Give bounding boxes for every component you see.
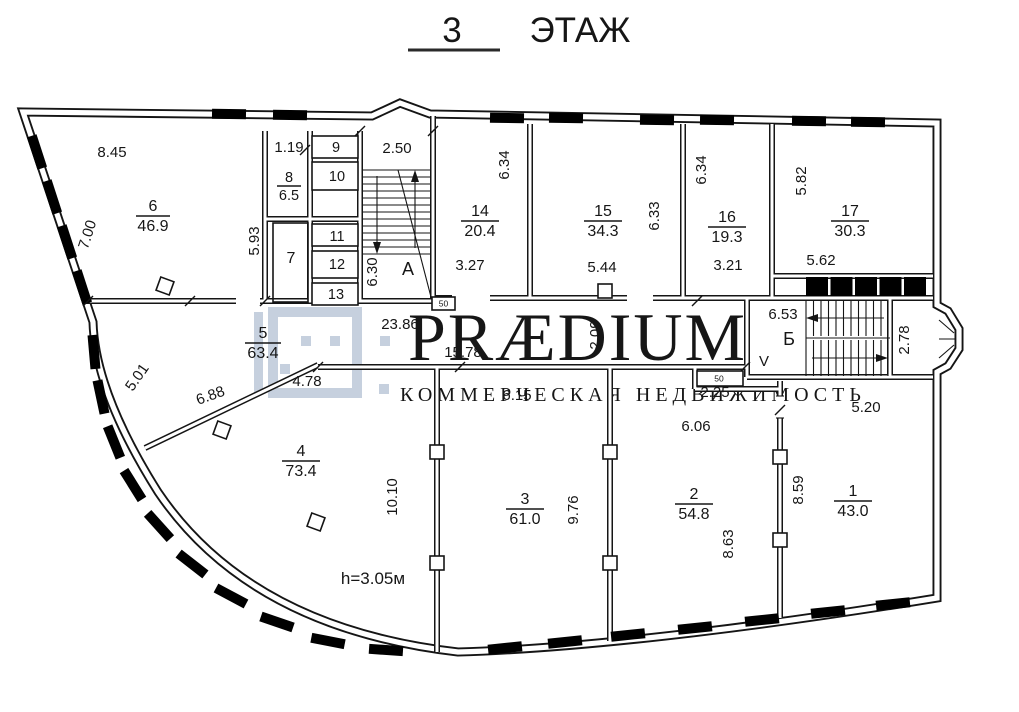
dim-room17-left: 5.82 [793,166,810,195]
dim-room2-right: 8.63 [720,529,737,558]
window [700,115,734,126]
svg-text:19.3: 19.3 [711,229,742,246]
window [876,597,911,610]
svg-text:54.8: 54.8 [678,506,709,523]
window [310,633,345,649]
staircase-v-label: V [759,353,769,370]
svg-text:73.4: 73.4 [285,463,316,480]
dim-corridor-seg: 4.78 [292,373,321,390]
window [273,110,307,121]
watermark-tagline: КОММЕРЧЕСКАЯ НЕДВИЖИМОСТЬ [400,384,866,406]
dim-room7-left: 5.93 [246,226,263,255]
room-label-12: 12 [329,257,345,273]
dim-room3-right: 9.76 [565,495,582,524]
dim-stair-b-top: 6.53 [768,306,797,323]
svg-text:8: 8 [285,170,293,186]
svg-text:6: 6 [149,198,158,215]
svg-text:34.3: 34.3 [587,223,618,240]
ceiling-height-note: h=3.05м [341,569,405,588]
door-width-label: 50 [714,374,724,384]
dim-room8-top: 1.19 [274,139,303,156]
room-label-10: 10 [329,169,345,185]
dim-corridor-left: 5.01 [122,361,153,395]
stair-b-upper-arrowhead [806,314,818,322]
column-marker [773,533,787,547]
dim-room6-top: 8.45 [97,144,126,161]
svg-text:20.4: 20.4 [464,223,495,240]
window [42,179,62,214]
window [212,109,246,120]
stair-b-lower-arrowhead [876,354,888,362]
stair-a-down-arrowhead [373,242,381,254]
title-block: 3 ЭТАЖ [408,11,631,50]
room-label-4: 4 73.4 [282,443,320,480]
window [176,550,209,579]
dim-corridor-diag: 6.88 [194,383,227,409]
svg-text:16: 16 [718,209,736,226]
room-label-11: 11 [329,229,344,245]
staircase-b-label: Б [783,329,795,349]
room-label-13: 13 [328,287,344,303]
window [490,113,524,124]
svg-text:17: 17 [841,203,859,220]
room-label-8: 8 6.5 [277,170,301,204]
room-label-17: 17 30.3 [831,203,869,240]
column-marker [773,450,787,464]
dim-room17-bottom: 5.62 [806,252,835,269]
room-label-6: 6 46.9 [136,198,170,235]
svg-text:61.0: 61.0 [509,511,540,528]
dim-room15-right: 6.33 [646,201,663,230]
window [792,116,826,127]
window [259,612,294,633]
dim-room2-top: 6.06 [681,418,710,435]
room-label-14: 14 20.4 [461,203,499,240]
svg-text:1: 1 [849,483,858,500]
dim-vestibule: 2.25 [700,384,729,401]
room-label-3: 3 61.0 [506,491,544,528]
svg-text:46.9: 46.9 [137,218,168,235]
dim-stair-a-left: 6.30 [364,257,381,286]
dim-room16-bottom: 3.21 [713,257,742,274]
column-marker [603,445,617,459]
title-floor-word: ЭТАЖ [529,11,630,50]
staircase-a-label: А [402,259,414,279]
svg-text:2: 2 [690,486,699,503]
dim-room14-right: 6.34 [496,150,513,179]
column-marker [307,513,325,531]
window [640,115,674,126]
svg-text:6.5: 6.5 [279,188,299,204]
dim-room15-bottom: 5.44 [587,259,616,276]
column-marker [430,445,444,459]
room-label-2: 2 54.8 [675,486,713,523]
dim-room14-bottom: 3.27 [455,257,484,274]
dim-room1-left: 8.59 [790,475,807,504]
svg-text:63.4: 63.4 [247,345,278,362]
svg-text:14: 14 [471,203,489,220]
window [27,134,47,169]
dim-stair-a-top: 2.50 [382,140,411,157]
staircase-b-steps [806,300,890,376]
column-marker [430,556,444,570]
window [549,113,583,124]
shaft-row [806,277,926,296]
column-marker [598,284,612,298]
dim-corridor-width: 2.09 [587,320,604,349]
column-marker [156,277,174,295]
svg-text:5: 5 [259,325,268,342]
svg-text:30.3: 30.3 [834,223,865,240]
svg-text:43.0: 43.0 [837,503,868,520]
room-label-1: 1 43.0 [834,483,872,520]
room-label-7: 7 [287,250,296,267]
window [851,117,885,128]
floor-plan-page: PRÆDIUM КОММЕРЧЕСКАЯ НЕДВИЖИМОСТЬ 3 ЭТАЖ [0,0,1019,712]
floor-plan-drawing: PRÆDIUM КОММЕРЧЕСКАЯ НЕДВИЖИМОСТЬ 3 ЭТАЖ [0,0,1019,712]
dim-room4-right: 10.10 [384,478,401,516]
watermark-brand: PRÆDIUM [408,299,747,375]
window [214,584,249,609]
svg-text:4: 4 [297,443,306,460]
room-label-15: 15 34.3 [584,203,622,240]
title-floor-number: 3 [442,11,461,50]
dim-room1-top: 5.20 [851,399,880,416]
room-label-16: 16 19.3 [708,209,746,246]
dim-room16-left: 6.34 [693,155,710,184]
dim-room6-left: 7.00 [75,218,100,251]
column-marker [213,421,231,439]
svg-text:3: 3 [521,491,530,508]
dim-stair-b-right: 2.78 [896,325,913,354]
dim-corridor-top: 23.86 [381,316,419,333]
dim-room3-top: 6.15 [502,387,531,404]
room-label-9: 9 [332,140,340,156]
dim-corridor-bottom: 15.78 [444,344,482,361]
svg-text:15: 15 [594,203,612,220]
window [57,224,77,259]
door-width-label: 50 [439,299,449,309]
column-marker [603,556,617,570]
stair-a-up-arrowhead [411,170,419,182]
